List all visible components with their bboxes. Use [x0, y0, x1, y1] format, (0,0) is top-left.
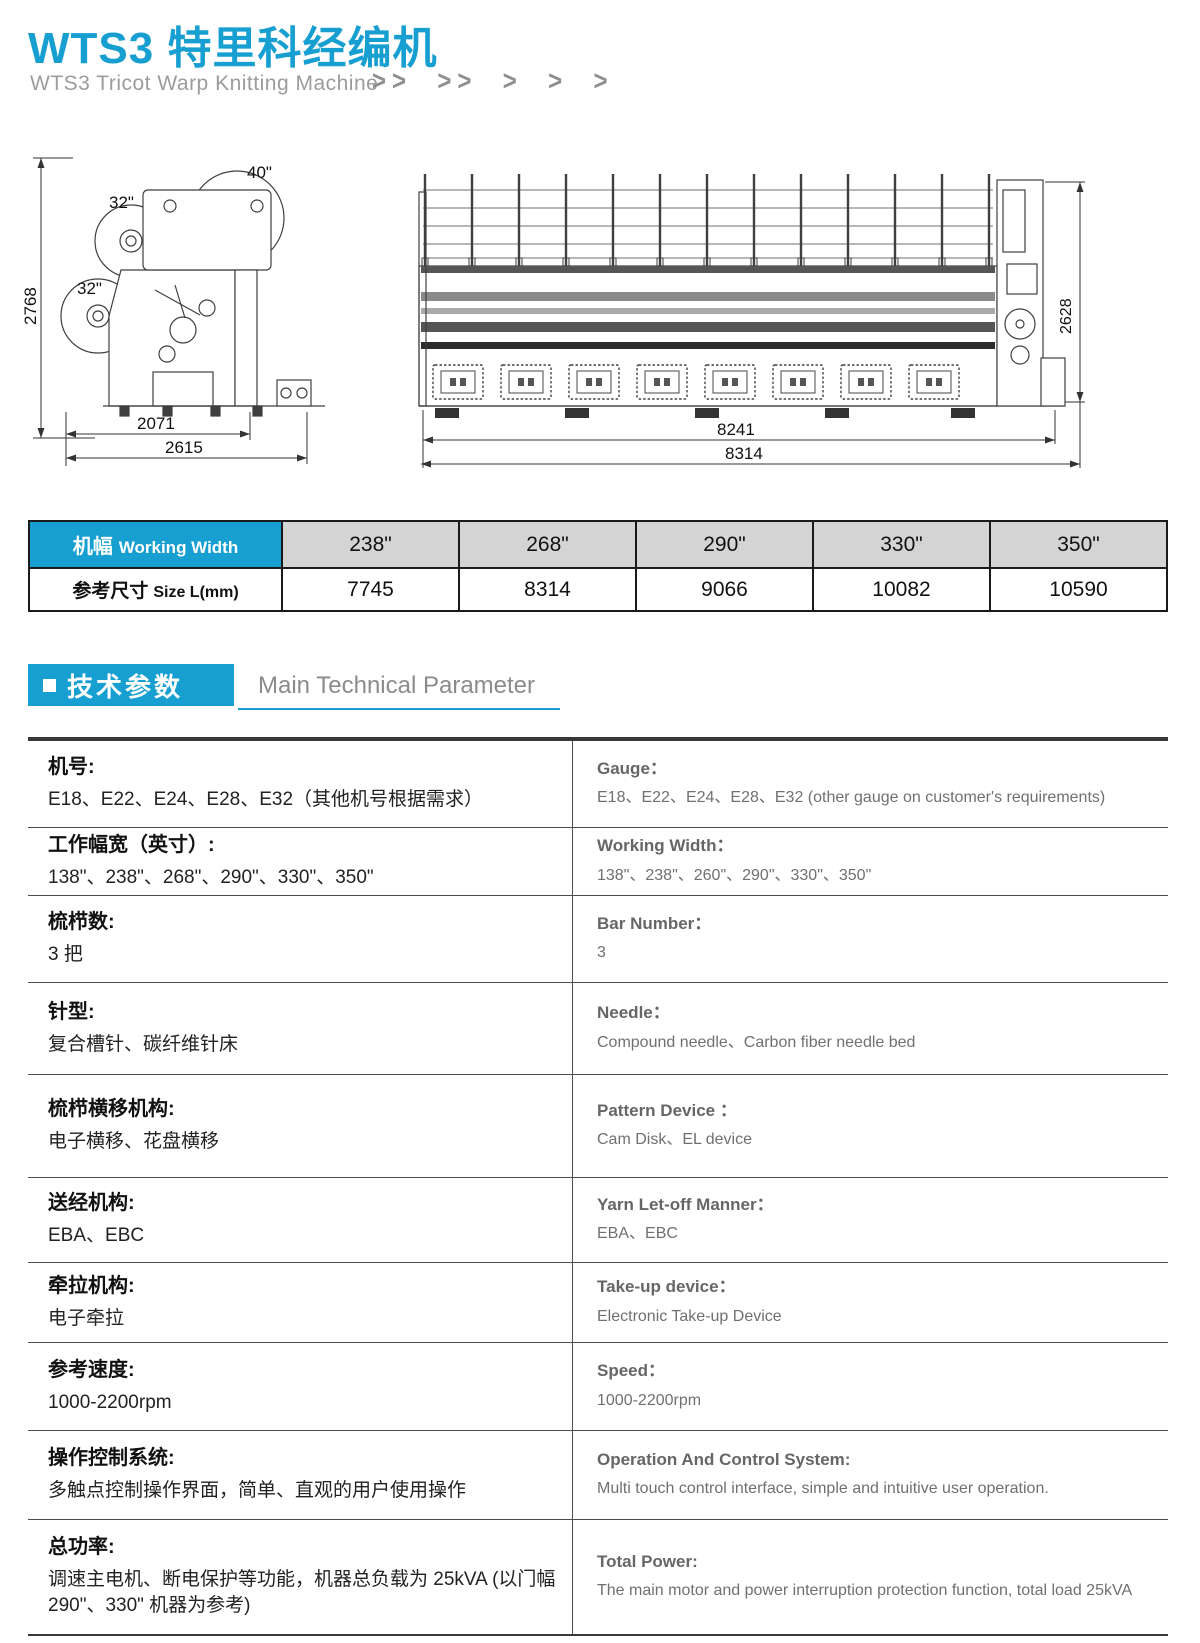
spec-value-en: The main motor and power interruption pr… — [597, 1581, 1162, 1602]
creel-posts — [422, 174, 992, 266]
spec-title-cn: 针型: — [48, 1000, 558, 1025]
machine-head-tower — [997, 180, 1065, 406]
spec-cell-cn: 参考速度: 1000-2200rpm — [28, 1343, 572, 1430]
beam-40-label: 40" — [247, 163, 272, 182]
size-label-en: Size L(mm) — [153, 584, 238, 601]
spec-value-en: Multi touch control interface, simple an… — [597, 1479, 1162, 1500]
chevron-icons: >> >> > > > — [372, 66, 613, 98]
beam-32-lower-label: 32" — [77, 279, 102, 298]
working-width-label-cn: 机幅 — [73, 536, 113, 558]
size-label-cn: 参考尺寸 — [72, 581, 148, 602]
width-cell: 330" — [813, 521, 990, 568]
table-row: 参考尺寸Size L(mm) 7745 8314 9066 10082 1059… — [29, 568, 1167, 611]
spec-title-cn: 参考速度: — [48, 1358, 558, 1383]
spec-value-cn: 复合槽针、碳纤维针床 — [48, 1032, 558, 1058]
spec-row-takeup: 牵拉机构: 电子牵拉 Take-up device： Electronic Ta… — [28, 1263, 1168, 1343]
working-width-label-en: Working Width — [119, 538, 238, 557]
spec-value-cn: 1000-2200rpm — [48, 1390, 558, 1416]
size-cell: 9066 — [636, 568, 813, 611]
spec-value-en: E18、E22、E24、E28、E32 (other gauge on cust… — [597, 788, 1162, 809]
spec-value-cn: EBA、EBC — [48, 1223, 558, 1249]
width-cell: 350" — [990, 521, 1167, 568]
spec-cell-cn: 操作控制系统: 多触点控制操作界面，简单、直观的用户使用操作 — [28, 1431, 572, 1519]
spec-cell-en: Pattern Device ： Cam Disk、EL device — [572, 1075, 1168, 1177]
spec-cell-en: Gauge： E18、E22、E24、E28、E32 (other gauge … — [572, 741, 1168, 827]
working-width-table: 机幅Working Width 238" 268" 290" 330" 350"… — [28, 520, 1168, 612]
spec-title-en: Gauge： — [597, 759, 1162, 779]
motor-box — [277, 380, 311, 406]
spec-cell-cn: 工作幅宽（英寸）: 138"、238"、268"、290"、330"、350" — [28, 828, 572, 895]
spec-title-cn: 送经机构: — [48, 1191, 558, 1216]
spec-row-gauge: 机号: E18、E22、E24、E28、E32（其他机号根据需求） Gauge：… — [28, 741, 1168, 828]
spec-title-cn: 工作幅宽（英寸）: — [48, 833, 558, 858]
spec-title-cn: 牵拉机构: — [48, 1274, 558, 1299]
spec-value-en: 1000-2200rpm — [597, 1391, 1162, 1412]
spec-cell-cn: 送经机构: EBA、EBC — [28, 1178, 572, 1262]
spec-cell-en: Yarn Let-off Manner： EBA、EBC — [572, 1178, 1168, 1262]
spec-title-en: Take-up device： — [597, 1277, 1162, 1297]
spec-row-pattern-device: 梳栉横移机构: 电子横移、花盘横移 Pattern Device ： Cam D… — [28, 1075, 1168, 1178]
spec-cell-en: Working Width： 138"、238"、260"、290"、330"、… — [572, 828, 1168, 895]
machine-front-view-drawing: 2628 8241 8314 — [395, 152, 1095, 472]
page-subtitle: WTS3 Tricot Warp Knitting Machine — [30, 72, 378, 96]
dim-2615-label: 2615 — [165, 438, 203, 457]
spec-cell-cn: 机号: E18、E22、E24、E28、E32（其他机号根据需求） — [28, 741, 572, 827]
spec-row-working-width: 工作幅宽（英寸）: 138"、238"、268"、290"、330"、350" … — [28, 828, 1168, 896]
spec-value-en: 3 — [597, 943, 1162, 964]
spec-cell-cn: 梳栉横移机构: 电子横移、花盘横移 — [28, 1075, 572, 1177]
width-cell: 238" — [282, 521, 459, 568]
spec-value-cn: 电子横移、花盘横移 — [48, 1129, 558, 1155]
spec-row-total-power: 总功率: 调速主电机、断电保护等功能，机器总负载为 25kVA (以门幅 290… — [28, 1520, 1168, 1634]
spec-cell-en: Bar Number： 3 — [572, 896, 1168, 982]
working-width-header-cell: 机幅Working Width — [29, 521, 282, 568]
machine-column — [235, 270, 257, 406]
section-title-en: Main Technical Parameter — [258, 672, 535, 700]
spec-value-en: Electronic Take-up Device — [597, 1307, 1162, 1328]
spec-cell-cn: 总功率: 调速主电机、断电保护等功能，机器总负载为 25kVA (以门幅 290… — [28, 1520, 572, 1634]
section-underline — [238, 708, 560, 710]
spec-title-en: Operation And Control System: — [597, 1450, 1162, 1470]
dim-2628-label: 2628 — [1058, 298, 1075, 334]
spec-title-cn: 梳栉数: — [48, 910, 558, 935]
spec-title-cn: 操作控制系统: — [48, 1446, 558, 1471]
bullet-square-icon — [43, 679, 56, 692]
spec-row-needle: 针型: 复合槽针、碳纤维针床 Needle： Compound needle、C… — [28, 983, 1168, 1075]
spec-row-control-system: 操作控制系统: 多触点控制操作界面，简单、直观的用户使用操作 Operation… — [28, 1431, 1168, 1520]
spec-value-cn: 电子牵拉 — [48, 1306, 558, 1332]
spec-cell-en: Total Power: The main motor and power in… — [572, 1520, 1168, 1634]
dim-8241-label: 8241 — [717, 420, 755, 439]
table-row: 机幅Working Width 238" 268" 290" 330" 350" — [29, 521, 1167, 568]
spec-cell-en: Operation And Control System: Multi touc… — [572, 1431, 1168, 1519]
spec-title-en: Pattern Device ： — [597, 1101, 1162, 1121]
spec-value-cn: 138"、238"、268"、290"、330"、350" — [48, 865, 558, 891]
spec-row-bar-number: 梳栉数: 3 把 Bar Number： 3 — [28, 896, 1168, 983]
section-header-box: 技术参数 — [28, 664, 234, 706]
spec-cell-en: Take-up device： Electronic Take-up Devic… — [572, 1263, 1168, 1342]
size-header-cell: 参考尺寸Size L(mm) — [29, 568, 282, 611]
spec-value-en: 138"、238"、260"、290"、330"、350" — [597, 866, 1162, 887]
spec-cell-cn: 牵拉机构: 电子牵拉 — [28, 1263, 572, 1342]
spec-title-en: Working Width： — [597, 836, 1162, 856]
spec-cell-cn: 针型: 复合槽针、碳纤维针床 — [28, 983, 572, 1074]
spec-value-cn: 多触点控制操作界面，简单、直观的用户使用操作 — [48, 1478, 558, 1504]
dim-2071-label: 2071 — [137, 414, 175, 433]
size-cell: 8314 — [459, 568, 636, 611]
spec-title-cn: 梳栉横移机构: — [48, 1097, 558, 1122]
spec-title-en: Yarn Let-off Manner： — [597, 1195, 1162, 1215]
spec-title-cn: 机号: — [48, 755, 558, 780]
size-cell: 10082 — [813, 568, 990, 611]
spec-row-speed: 参考速度: 1000-2200rpm Speed： 1000-2200rpm — [28, 1343, 1168, 1431]
spec-cell-cn: 梳栉数: 3 把 — [28, 896, 572, 982]
spec-title-en: Needle： — [597, 1003, 1162, 1023]
spec-value-en: EBA、EBC — [597, 1224, 1162, 1245]
beam-32-upper-label: 32" — [109, 193, 134, 212]
dim-2768-label: 2768 — [21, 287, 40, 325]
spec-value-cn: E18、E22、E24、E28、E32（其他机号根据需求） — [48, 787, 558, 813]
spec-title-en: Speed： — [597, 1361, 1162, 1381]
spec-value-cn: 调速主电机、断电保护等功能，机器总负载为 25kVA (以门幅 290"、330… — [48, 1567, 558, 1618]
spec-value-en: Cam Disk、EL device — [597, 1130, 1162, 1151]
spec-title-cn: 总功率: — [48, 1535, 558, 1560]
spec-table: 机号: E18、E22、E24、E28、E32（其他机号根据需求） Gauge：… — [28, 737, 1168, 1636]
spec-title-en: Bar Number： — [597, 914, 1162, 934]
spec-title-en: Total Power: — [597, 1552, 1162, 1572]
spec-value-en: Compound needle、Carbon fiber needle bed — [597, 1033, 1162, 1054]
spec-cell-en: Needle： Compound needle、Carbon fiber nee… — [572, 983, 1168, 1074]
size-cell: 7745 — [282, 568, 459, 611]
dim-8314-label: 8314 — [725, 444, 763, 463]
section-title-cn: 技术参数 — [67, 667, 183, 704]
machine-side-view-drawing: 2768 40" 32" 32" 2071 2615 — [25, 140, 365, 470]
size-cell: 10590 — [990, 568, 1167, 611]
width-cell: 290" — [636, 521, 813, 568]
width-cell: 268" — [459, 521, 636, 568]
spec-cell-en: Speed： 1000-2200rpm — [572, 1343, 1168, 1430]
spec-value-cn: 3 把 — [48, 942, 558, 968]
spec-row-yarn-letoff: 送经机构: EBA、EBC Yarn Let-off Manner： EBA、E… — [28, 1178, 1168, 1263]
